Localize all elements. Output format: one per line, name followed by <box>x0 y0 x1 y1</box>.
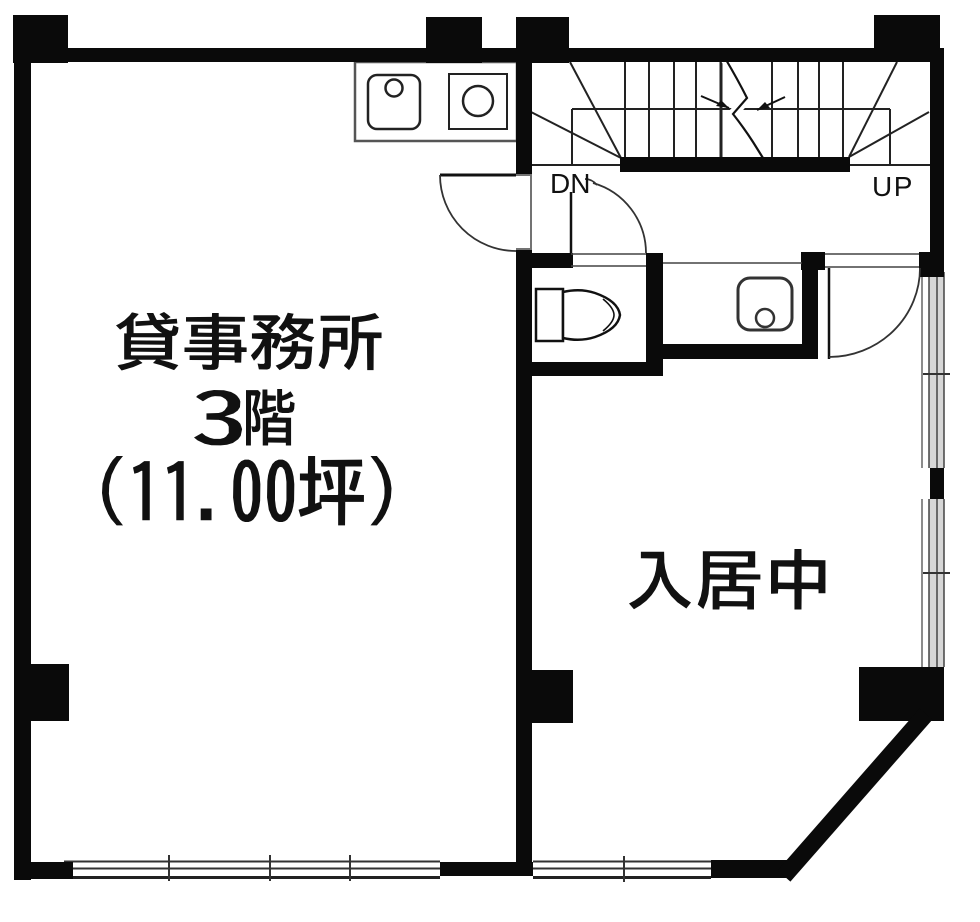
svg-text:DN: DN <box>550 168 590 199</box>
svg-text:UP: UP <box>872 171 914 202</box>
